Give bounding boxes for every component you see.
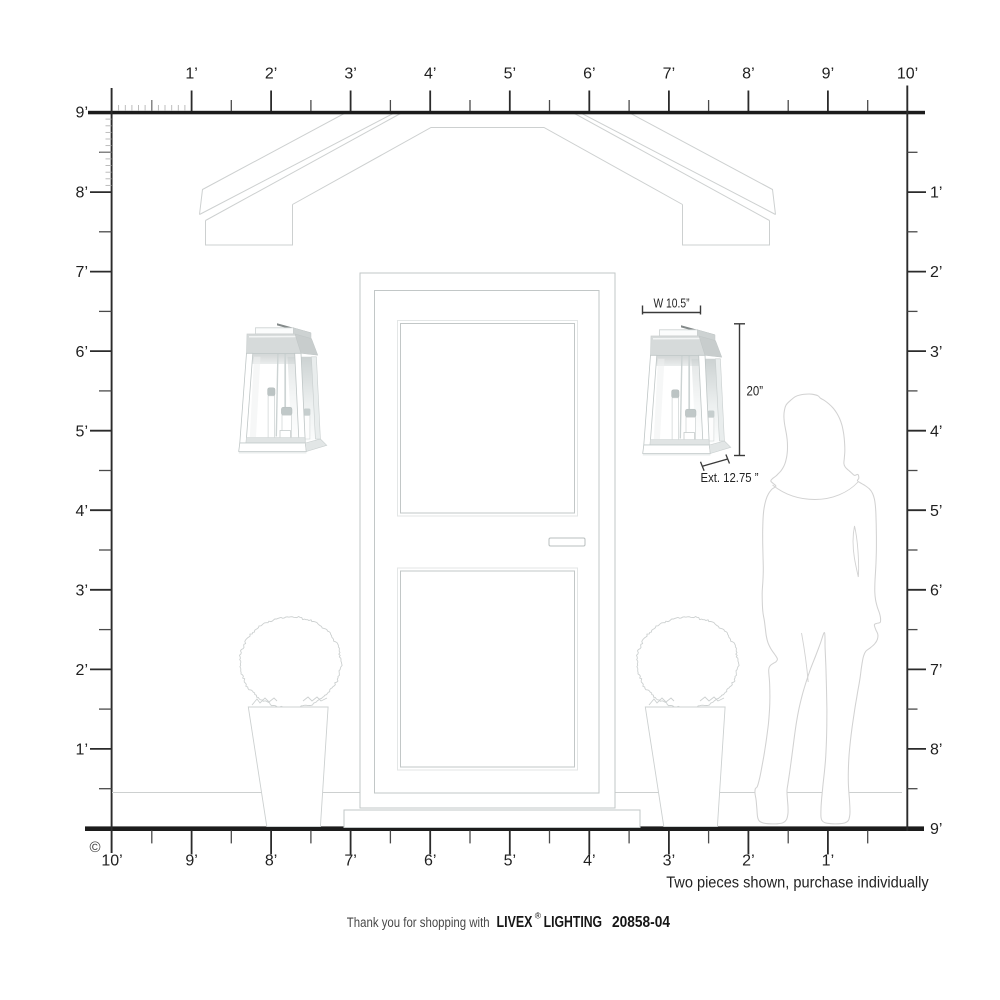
svg-text:4’: 4’ [583, 853, 595, 870]
svg-text:3’: 3’ [76, 582, 88, 599]
svg-text:®: ® [535, 911, 542, 921]
svg-text:6’: 6’ [583, 66, 595, 83]
svg-text:Two pieces shown, purchase ind: Two pieces shown, purchase individually [666, 874, 929, 891]
svg-text:2’: 2’ [76, 662, 88, 679]
svg-text:9’: 9’ [76, 104, 88, 121]
svg-text:8’: 8’ [76, 185, 88, 202]
svg-text:6’: 6’ [424, 853, 436, 870]
svg-text:20858-04: 20858-04 [612, 914, 670, 931]
svg-text:LIGHTING: LIGHTING [544, 914, 603, 931]
svg-text:8’: 8’ [742, 66, 754, 83]
svg-text:1’: 1’ [185, 66, 197, 83]
svg-text:1’: 1’ [930, 185, 942, 202]
svg-text:5’: 5’ [504, 853, 516, 870]
svg-text:9’: 9’ [930, 821, 942, 838]
svg-text:7’: 7’ [930, 662, 942, 679]
svg-text:3’: 3’ [344, 66, 356, 83]
svg-text:Ext. 12.75 ”: Ext. 12.75 ” [701, 471, 759, 485]
svg-text:10’: 10’ [897, 66, 918, 83]
svg-text:5’: 5’ [930, 503, 942, 520]
svg-text:6’: 6’ [930, 582, 942, 599]
svg-text:5’: 5’ [76, 423, 88, 440]
svg-text:9’: 9’ [185, 853, 197, 870]
svg-text:20”: 20” [747, 384, 764, 399]
svg-text:4’: 4’ [424, 66, 436, 83]
svg-text:4’: 4’ [76, 503, 88, 520]
svg-text:©: © [90, 839, 101, 856]
svg-text:4’: 4’ [930, 423, 942, 440]
svg-text:LIVEX: LIVEX [497, 914, 534, 931]
svg-text:2’: 2’ [930, 264, 942, 281]
svg-text:W 10.5”: W 10.5” [654, 296, 690, 311]
svg-text:2’: 2’ [265, 66, 277, 83]
svg-text:9’: 9’ [822, 66, 834, 83]
svg-text:8’: 8’ [265, 853, 277, 870]
svg-text:Thank you for shopping with: Thank you for shopping with [347, 915, 490, 930]
svg-text:1’: 1’ [822, 853, 834, 870]
svg-text:2’: 2’ [742, 853, 754, 870]
svg-text:1’: 1’ [76, 742, 88, 759]
svg-text:5’: 5’ [504, 66, 516, 83]
svg-text:6’: 6’ [76, 344, 88, 361]
svg-text:7’: 7’ [663, 66, 675, 83]
svg-text:10’: 10’ [101, 853, 122, 870]
svg-text:3’: 3’ [930, 344, 942, 361]
svg-text:7’: 7’ [344, 853, 356, 870]
svg-text:8’: 8’ [930, 742, 942, 759]
svg-text:3’: 3’ [663, 853, 675, 870]
svg-text:7’: 7’ [76, 264, 88, 281]
